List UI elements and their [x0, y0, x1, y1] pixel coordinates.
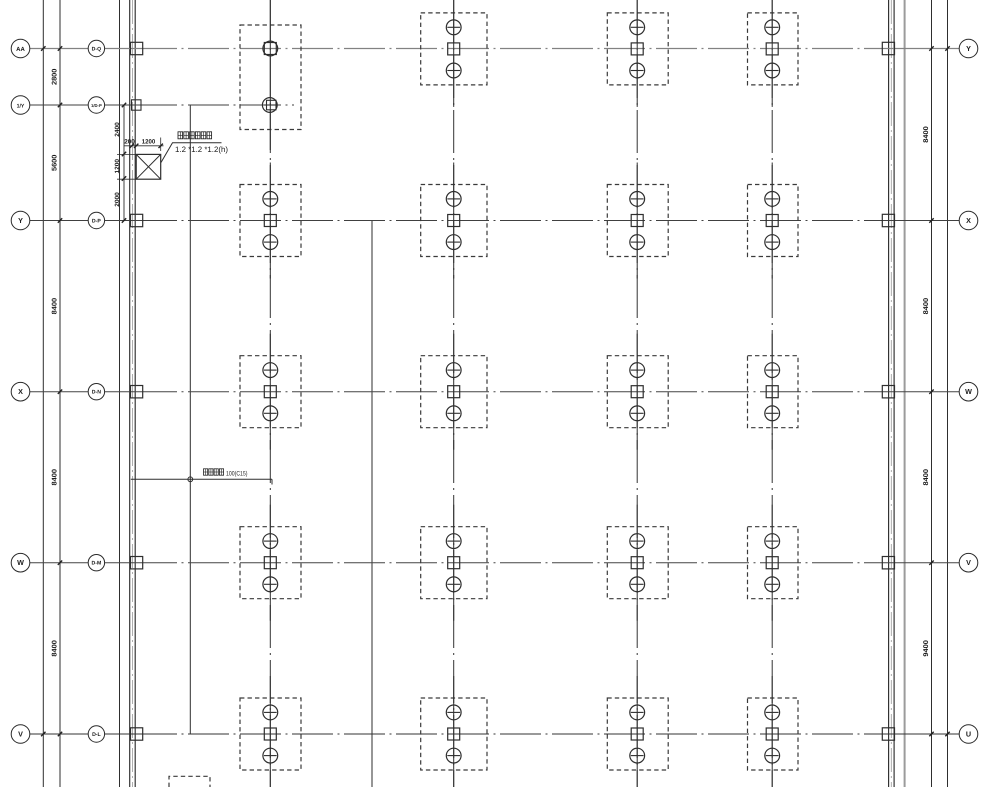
svg-text:1.2 *1.2 *1.2(h): 1.2 *1.2 *1.2(h): [175, 145, 228, 154]
svg-text:D-Q: D-Q: [92, 46, 102, 52]
svg-text:2000: 2000: [114, 192, 121, 207]
svg-text:1/Y: 1/Y: [17, 103, 25, 109]
svg-text:8400: 8400: [923, 298, 930, 315]
svg-text:V: V: [18, 729, 23, 738]
svg-text:X: X: [966, 216, 971, 225]
svg-text:D-M: D-M: [92, 561, 102, 567]
svg-text:Y: Y: [18, 216, 23, 225]
svg-text:8400: 8400: [52, 640, 59, 657]
svg-text:8400: 8400: [923, 126, 930, 143]
svg-text:U: U: [966, 729, 971, 738]
svg-text:D-N: D-N: [92, 390, 101, 396]
svg-text:W: W: [965, 387, 972, 396]
svg-text:2400: 2400: [114, 122, 121, 137]
svg-text:8400: 8400: [52, 469, 59, 486]
svg-text:1200: 1200: [142, 139, 156, 146]
svg-text:W: W: [17, 558, 24, 567]
svg-text:8400: 8400: [923, 469, 930, 486]
svg-text:1/D-P: 1/D-P: [91, 103, 102, 108]
svg-text:D-P: D-P: [92, 218, 101, 224]
svg-text:D-L: D-L: [92, 732, 101, 738]
svg-text:5600: 5600: [52, 154, 59, 171]
svg-text:8400: 8400: [52, 298, 59, 315]
svg-text:100(C15): 100(C15): [226, 470, 248, 477]
svg-text:AA: AA: [16, 46, 25, 53]
svg-text:Y: Y: [966, 44, 971, 53]
svg-text:V: V: [966, 558, 971, 567]
svg-text:1200: 1200: [114, 158, 121, 173]
svg-text:9400: 9400: [923, 640, 930, 657]
svg-text:2800: 2800: [52, 68, 59, 85]
svg-text:X: X: [18, 387, 23, 396]
svg-text:200: 200: [124, 139, 135, 146]
